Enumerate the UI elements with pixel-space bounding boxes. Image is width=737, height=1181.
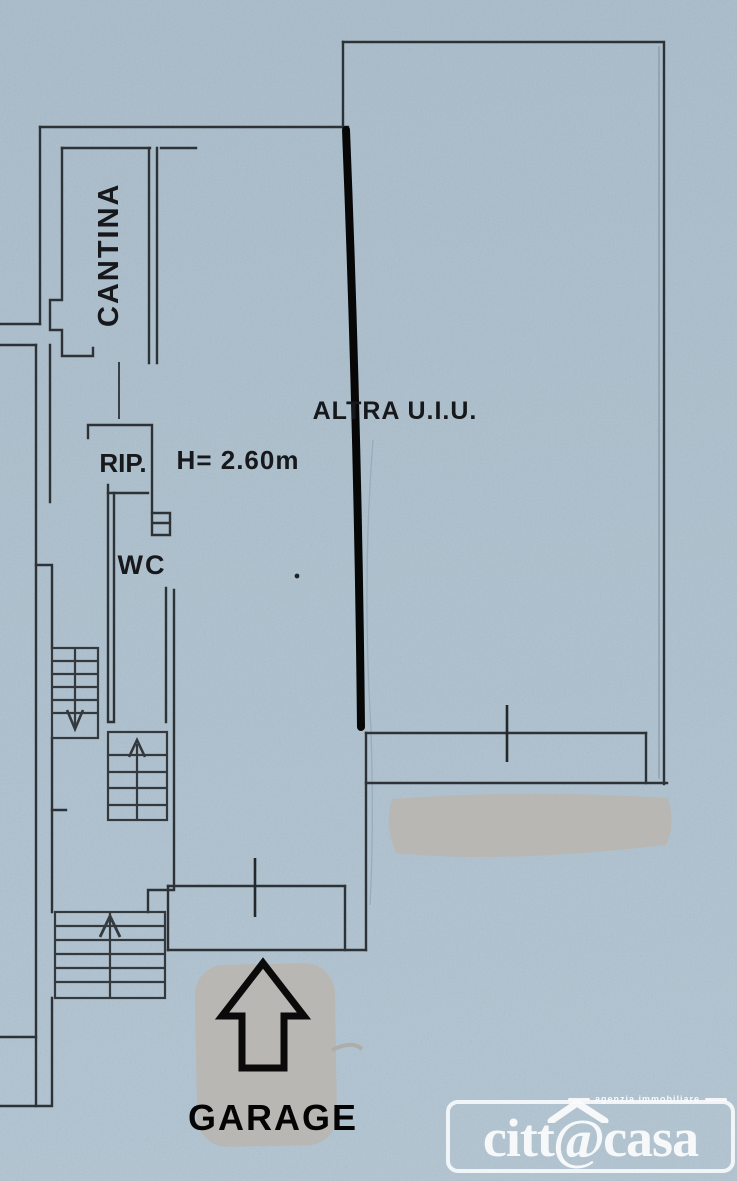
agency-watermark: agenzia immobiliare citt @ casa — [446, 1100, 735, 1173]
erasure-patch-right — [389, 794, 672, 857]
floor-plan-drawing — [0, 0, 737, 1181]
label-altra-uiu: ALTRA U.I.U. — [303, 399, 487, 424]
watermark-brand: citt @ casa — [483, 1110, 698, 1166]
paper-texture — [0, 0, 737, 1181]
tagline-dash-right — [705, 1098, 727, 1101]
watermark-tagline: agenzia immobiliare — [595, 1095, 700, 1104]
scanned-floor-plan: CANTINA ALTRA U.I.U. RIP. H= 2.60m WC GA… — [0, 0, 737, 1181]
label-rip: RIP. — [91, 450, 155, 476]
roof-icon — [547, 1099, 609, 1123]
label-garage: GARAGE — [181, 1100, 365, 1136]
label-wc: WC — [114, 552, 170, 579]
brand-suffix: casa — [603, 1111, 698, 1165]
label-ceiling-height: H= 2.60m — [170, 447, 306, 473]
brand-at: @ — [553, 1112, 604, 1168]
brand-prefix: citt — [483, 1111, 554, 1165]
label-cantina: CANTINA — [95, 187, 123, 327]
plan-dot — [295, 574, 300, 579]
